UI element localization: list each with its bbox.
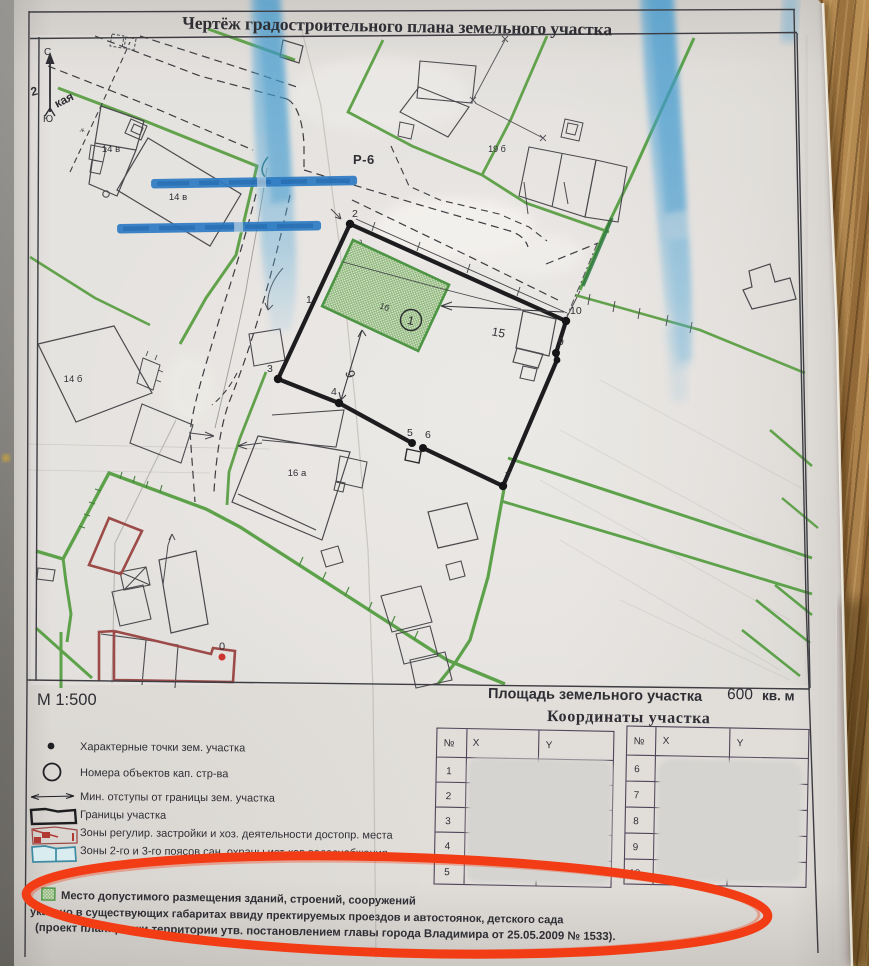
- svg-text:Y: Y: [546, 740, 553, 751]
- svg-text:Ю: Ю: [43, 114, 53, 125]
- svg-text:0: 0: [219, 641, 225, 653]
- svg-text:№: №: [444, 738, 455, 749]
- svg-text:2: 2: [352, 208, 358, 220]
- svg-text:Y: Y: [737, 738, 744, 749]
- svg-text:Координаты участка: Координаты участка: [547, 708, 711, 727]
- svg-text:X: X: [473, 738, 480, 749]
- svg-text:600: 600: [727, 686, 753, 703]
- svg-text:3: 3: [267, 363, 273, 375]
- svg-text:9: 9: [558, 336, 564, 348]
- svg-text:10: 10: [570, 305, 582, 317]
- svg-text:14 в: 14 в: [169, 192, 187, 203]
- svg-text:7: 7: [505, 470, 511, 482]
- svg-text:1: 1: [306, 294, 312, 306]
- svg-text:16 а: 16 а: [288, 468, 307, 479]
- svg-text:7: 7: [634, 790, 640, 801]
- svg-text:М 1:500: М 1:500: [37, 691, 97, 709]
- svg-text:5: 5: [444, 867, 450, 878]
- svg-text:19 б: 19 б: [488, 144, 506, 154]
- svg-text:14 б: 14 б: [64, 374, 83, 385]
- svg-text:4: 4: [331, 386, 337, 398]
- svg-text:6: 6: [425, 429, 431, 441]
- svg-text:14 в: 14 в: [102, 144, 120, 155]
- svg-text:9: 9: [633, 842, 639, 853]
- svg-text:Р-6: Р-6: [353, 152, 375, 167]
- svg-text:5: 5: [407, 427, 413, 439]
- svg-text:1: 1: [446, 766, 452, 777]
- svg-text:3: 3: [445, 816, 451, 827]
- svg-text:С: С: [44, 47, 51, 58]
- svg-text:Площадь земельного участка: Площадь земельного участка: [488, 686, 703, 705]
- svg-text:2: 2: [446, 791, 452, 802]
- svg-text:Характерные точки зем. участка: Характерные точки зем. участка: [80, 741, 246, 754]
- svg-text:№: №: [634, 736, 645, 747]
- svg-text:6: 6: [634, 764, 640, 775]
- svg-text:8: 8: [633, 816, 639, 827]
- svg-text:Границы участка: Границы участка: [80, 809, 167, 822]
- svg-text:Номера объектов кап. стр-ва: Номера объектов кап. стр-ва: [80, 767, 229, 780]
- svg-text:Мин. отступы от границы зем. у: Мин. отступы от границы зем. участка: [80, 791, 276, 805]
- svg-text:X: X: [663, 736, 670, 747]
- svg-text:4: 4: [445, 841, 451, 852]
- svg-text:кв. м: кв. м: [762, 688, 795, 703]
